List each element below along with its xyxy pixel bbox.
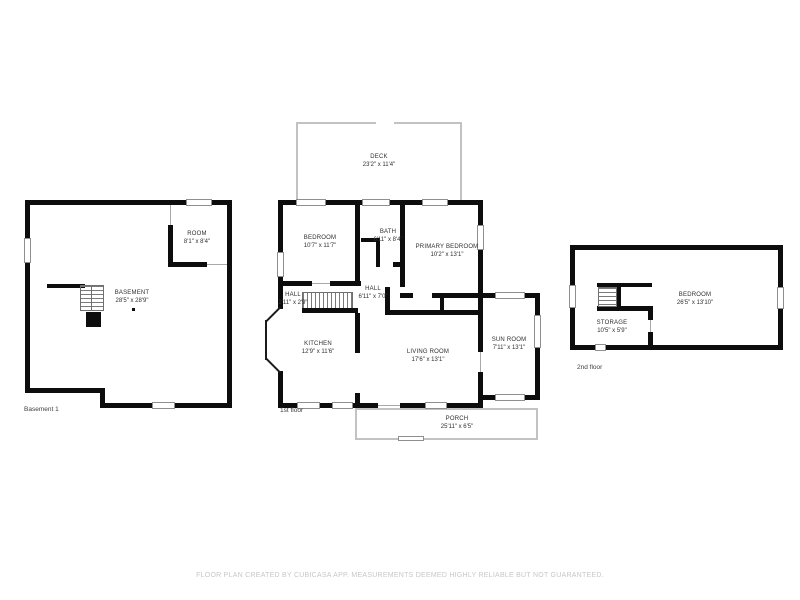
room-label-hall: HALL 6'11" x 7'0" <box>352 286 394 301</box>
window <box>595 344 606 351</box>
staircase <box>80 285 104 311</box>
room-dims: 6'11" x 8'4" <box>363 237 413 244</box>
window <box>332 402 353 409</box>
deck-steps-opening <box>376 121 394 125</box>
floor-label-basement: Basement 1 <box>24 406 59 413</box>
room-label-porch: PORCH 25'11" x 6'5" <box>422 416 492 431</box>
room-label-room: ROOM 8'1" x 8'4" <box>167 231 227 246</box>
wall-segment <box>648 332 653 350</box>
wall-segment <box>617 287 621 308</box>
window <box>495 394 525 401</box>
wall-segment <box>25 200 30 393</box>
bay-window-wall <box>266 358 282 374</box>
floor-plan-canvas: ROOM 8'1" x 8'4" BASEMENT 28'5" x 28'9" … <box>0 0 800 600</box>
room-name: SUN ROOM <box>484 337 534 344</box>
room-label-bath: BATH 6'11" x 8'4" <box>363 229 413 244</box>
window <box>425 402 447 409</box>
window <box>569 285 576 308</box>
wall-segment <box>278 281 312 286</box>
room-dims: 10'5" x 5'9" <box>582 328 642 335</box>
room-dims: 10'7" x 11'7" <box>290 243 350 250</box>
door-opening <box>170 205 171 225</box>
wall-segment <box>440 298 444 312</box>
room-label-kitchen: KITCHEN 12'9" x 11'6" <box>288 341 348 356</box>
door-opening <box>650 320 651 332</box>
room-name: STORAGE <box>582 320 642 327</box>
room-label-deck: DECK 23'2" x 11'4" <box>344 154 414 169</box>
room-label-bedroom: BEDROOM 10'7" x 11'7" <box>290 235 350 250</box>
window <box>296 199 326 206</box>
wall-segment <box>478 298 483 352</box>
staircase <box>598 287 617 307</box>
room-name: PORCH <box>422 416 492 423</box>
room-name: BATH <box>363 229 413 236</box>
window <box>495 292 525 299</box>
room-label-hall-small: HALL 2'11" x 2'9" <box>272 292 314 307</box>
window <box>422 199 448 206</box>
door-opening <box>480 352 481 372</box>
disclaimer-text: FLOOR PLAN CREATED BY CUBICASA APP. MEAS… <box>0 572 800 579</box>
room-name: HALL <box>352 286 394 293</box>
window <box>277 252 284 277</box>
wall-segment <box>227 200 232 408</box>
room-dims: 26'5" x 13'10" <box>660 300 730 307</box>
room-dims: 28'5" x 28'9" <box>102 298 162 305</box>
chimney-block <box>86 312 101 327</box>
window <box>362 199 390 206</box>
room-name: HALL <box>272 292 314 299</box>
room-label-bedroom2: BEDROOM 26'5" x 13'10" <box>660 292 730 307</box>
porch-steps <box>398 436 424 441</box>
window <box>777 287 784 309</box>
room-dims: 10'2" x 13'1" <box>405 252 489 259</box>
window <box>152 402 175 409</box>
door-opening <box>378 405 400 406</box>
wall-segment <box>648 306 653 320</box>
wall-segment <box>355 200 360 286</box>
floor-label-first: 1st floor <box>280 407 303 414</box>
wall-segment <box>25 388 105 393</box>
room-label-primary-bedroom: PRIMARY BEDROOM 10'2" x 13'1" <box>405 244 489 259</box>
room-dims: 12'9" x 11'6" <box>288 349 348 356</box>
room-label-basement: BASEMENT 28'5" x 28'9" <box>102 290 162 305</box>
window <box>186 199 212 206</box>
window <box>24 238 31 263</box>
room-name: LIVING ROOM <box>393 349 463 356</box>
bay-window-wall <box>265 320 267 360</box>
room-label-living-room: LIVING ROOM 17'6" x 13'1" <box>393 349 463 364</box>
room-dims: 8'1" x 8'4" <box>167 239 227 246</box>
room-name: BEDROOM <box>660 292 730 299</box>
room-dims: 23'2" x 11'4" <box>344 162 414 169</box>
stair-rail <box>91 285 92 311</box>
wall-segment <box>400 293 413 298</box>
room-name: PRIMARY BEDROOM <box>405 244 489 251</box>
room-name: BASEMENT <box>102 290 162 297</box>
room-name: DECK <box>344 154 414 161</box>
room-dims: 25'11" x 6'5" <box>422 424 492 431</box>
bay-window-wall <box>265 307 281 323</box>
room-name: BEDROOM <box>290 235 350 242</box>
room-dims: 17'6" x 13'1" <box>393 357 463 364</box>
room-name: ROOM <box>167 231 227 238</box>
room-label-storage: STORAGE 10'5" x 5'9" <box>582 320 642 335</box>
room-dims: 6'11" x 7'0" <box>352 294 394 301</box>
wall-segment <box>355 393 360 408</box>
door-opening <box>312 283 330 284</box>
column-marker <box>132 308 135 311</box>
window <box>534 315 541 348</box>
wall-segment <box>302 308 358 313</box>
floor-label-second: 2nd floor <box>577 364 602 371</box>
room-label-sun-room: SUN ROOM 7'11" x 13'1" <box>484 337 534 352</box>
wall-segment <box>355 313 360 353</box>
wall-segment <box>570 245 783 250</box>
door-opening <box>207 264 227 265</box>
room-dims: 2'11" x 2'9" <box>272 300 314 307</box>
room-dims: 7'11" x 13'1" <box>484 345 534 352</box>
wall-segment <box>168 262 207 267</box>
wall-segment <box>385 310 483 315</box>
room-name: KITCHEN <box>288 341 348 348</box>
